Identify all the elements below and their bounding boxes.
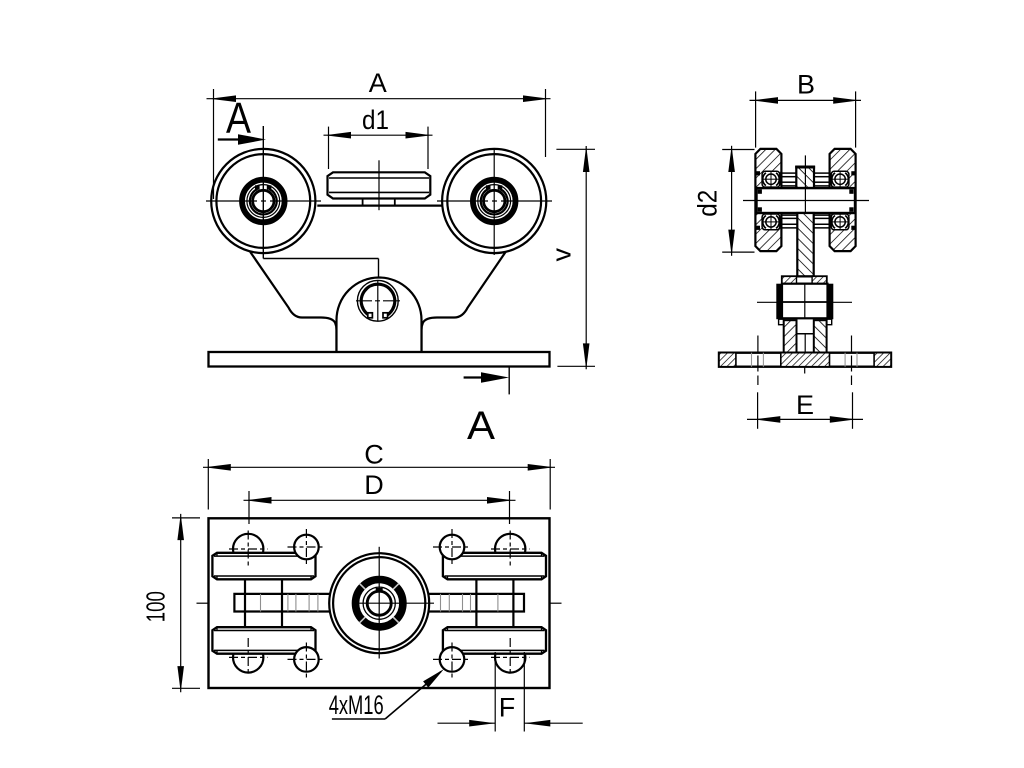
svg-text:A: A [467,404,495,448]
svg-text:B: B [797,70,815,100]
svg-text:E: E [796,390,814,420]
svg-text:4xM16: 4xM16 [329,690,384,720]
svg-text:F: F [499,693,516,723]
svg-text:d2: d2 [693,190,723,217]
svg-text:A: A [226,94,252,143]
svg-text:100: 100 [141,591,171,622]
svg-text:C: C [364,440,384,470]
svg-text:d1: d1 [362,105,389,135]
svg-text:D: D [364,470,384,500]
svg-text:v: v [547,248,577,262]
svg-text:A: A [369,68,387,98]
